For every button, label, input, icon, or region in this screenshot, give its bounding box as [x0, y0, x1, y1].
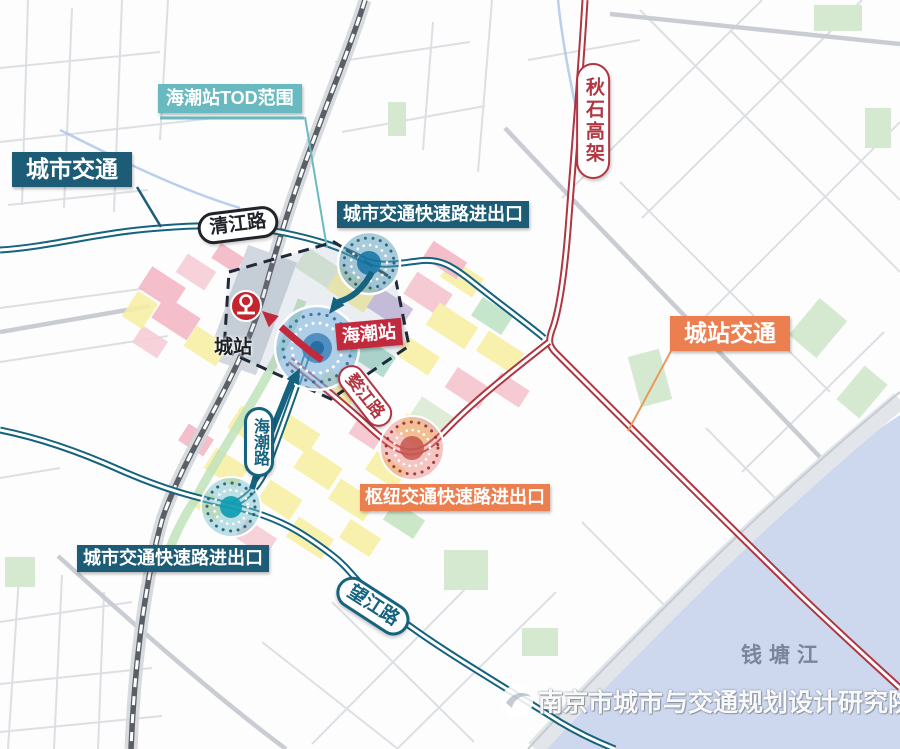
road-label-haichao-road: 海潮路	[244, 407, 274, 477]
city-traffic-label: 城市交通	[12, 152, 132, 187]
interchange-circle-hub	[380, 416, 444, 480]
road-label-qiushi-viaduct: 秋石高架	[576, 63, 610, 179]
map-canvas	[0, 0, 900, 749]
tod-scope-label: 海潮站TOD范围	[158, 84, 302, 113]
tod-planning-map: 海潮站TOD范围 城市交通 清江路 城市交通快速路进出口 秋石高架 海潮站 城站…	[0, 0, 900, 749]
hub-expressway-exit-label: 枢纽交通快速路进出口	[360, 484, 550, 511]
river-label-qiantang: 钱塘江	[741, 643, 825, 669]
station-traffic-label: 城站交通	[670, 316, 790, 351]
city-expressway-exit-label-top: 城市交通快速路进出口	[337, 201, 529, 228]
interchange-circle-qingjiang	[338, 232, 400, 294]
city-expressway-exit-label-bottom: 城市交通快速路进出口	[77, 545, 269, 572]
station-label-chengzhan: 城站	[214, 336, 252, 360]
watermark-text: 南京市城市与交通规划设计研究院	[538, 688, 900, 719]
railway-station-icon	[231, 291, 261, 321]
